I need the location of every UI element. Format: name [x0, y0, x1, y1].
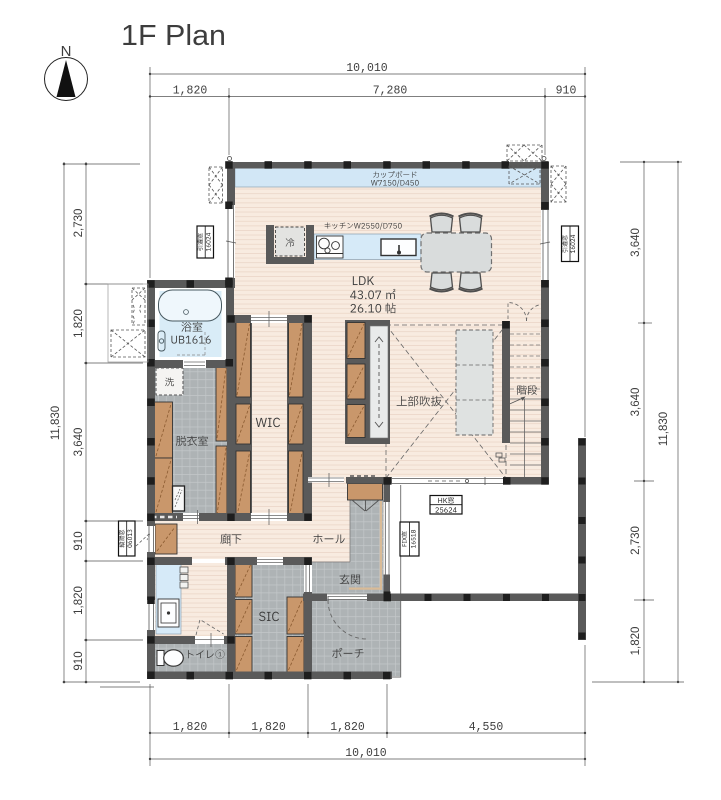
svg-text:910: 910	[73, 651, 85, 670]
svg-text:1,820: 1,820	[173, 721, 208, 734]
svg-text:7,280: 7,280	[373, 85, 408, 98]
svg-text:1,820: 1,820	[173, 85, 208, 98]
svg-text:1,820: 1,820	[330, 721, 365, 734]
svg-text:10,010: 10,010	[346, 62, 388, 75]
svg-text:N: N	[61, 43, 72, 60]
svg-text:3,640: 3,640	[630, 388, 642, 417]
svg-text:3,640: 3,640	[630, 228, 642, 257]
svg-text:910: 910	[73, 531, 85, 550]
svg-text:4,550: 4,550	[469, 721, 504, 734]
svg-text:11,830: 11,830	[658, 412, 670, 446]
svg-text:1,820: 1,820	[630, 627, 642, 656]
svg-text:2,730: 2,730	[630, 526, 642, 555]
svg-text:10,010: 10,010	[345, 747, 387, 760]
svg-text:910: 910	[556, 85, 577, 98]
svg-text:3,640: 3,640	[73, 428, 85, 457]
svg-text:1,820: 1,820	[251, 721, 286, 734]
svg-text:2,730: 2,730	[73, 209, 85, 238]
svg-text:1F Plan: 1F Plan	[121, 20, 226, 52]
svg-text:11,830: 11,830	[50, 406, 62, 440]
svg-text:1,820: 1,820	[73, 309, 85, 338]
svg-text:1,820: 1,820	[73, 586, 85, 615]
